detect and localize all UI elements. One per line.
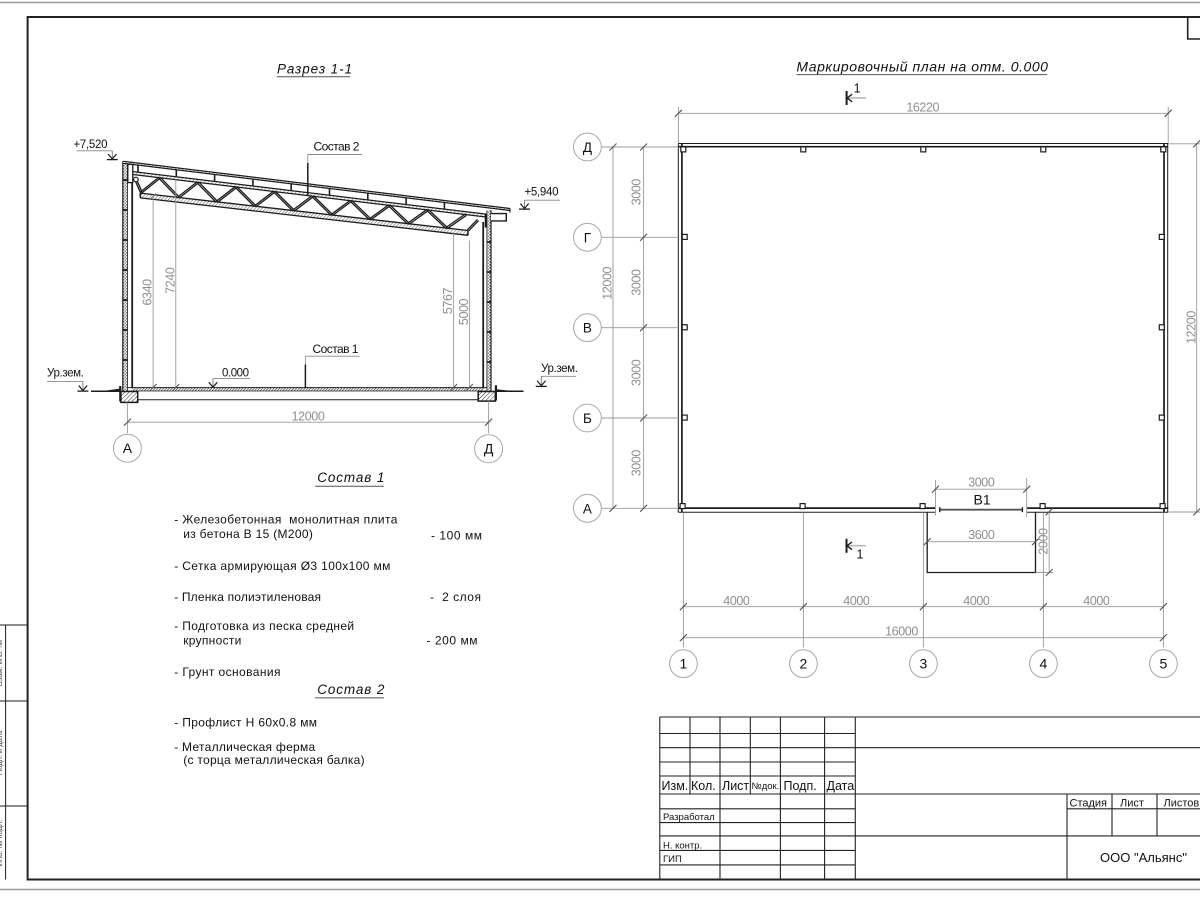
svg-text:6340: 6340 (141, 279, 155, 306)
svg-text:Состав 1: Состав 1 (313, 342, 359, 356)
svg-text:ГИП: ГИП (663, 854, 682, 865)
svg-text:- 2 слоя: - 2 слоя (430, 590, 481, 604)
svg-text:Разработал: Разработал (663, 812, 715, 823)
svg-text:Ур.зем.: Ур.зем. (47, 368, 84, 380)
svg-text:Взам. инв. №: Взам. инв. № (0, 640, 4, 686)
svg-text:из бетона В 15 (М200): из бетона В 15 (М200) (183, 527, 313, 541)
svg-text:Ур.зем.: Ур.зем. (541, 363, 578, 375)
svg-text:4000: 4000 (963, 594, 990, 608)
svg-text:4: 4 (1040, 656, 1048, 672)
svg-text:- 200 мм: - 200 мм (427, 634, 479, 648)
svg-text:Г: Г (584, 230, 592, 245)
svg-text:А: А (583, 501, 592, 516)
svg-text:2: 2 (800, 656, 808, 672)
svg-text:- Подготовка из песка средней: - Подготовка из песка средней (174, 619, 354, 633)
svg-text:Подп. и дата: Подп. и дата (0, 730, 4, 775)
svg-text:12000: 12000 (292, 409, 325, 423)
svg-text:Листов: Листов (1164, 798, 1200, 810)
svg-text:Подп.: Подп. (784, 779, 817, 793)
svg-text:Н. контр.: Н. контр. (663, 840, 702, 851)
svg-text:16220: 16220 (906, 101, 939, 115)
svg-text:5: 5 (1160, 656, 1168, 672)
svg-text:4000: 4000 (723, 594, 750, 608)
svg-text:Дата: Дата (827, 779, 855, 793)
svg-text:1: 1 (680, 656, 688, 672)
svg-text:Д: Д (583, 140, 592, 155)
svg-text:3000: 3000 (630, 269, 644, 296)
svg-text:3000: 3000 (630, 450, 644, 477)
svg-text:1: 1 (854, 82, 861, 96)
svg-text:5767: 5767 (441, 287, 455, 314)
svg-text:+7,520: +7,520 (74, 139, 108, 151)
svg-text:4000: 4000 (1083, 594, 1110, 608)
svg-text:Инв. № подл.: Инв. № подл. (0, 820, 4, 867)
svg-text:5000: 5000 (457, 298, 471, 325)
svg-text:ООО "Альянс": ООО "Альянс" (1100, 850, 1187, 865)
svg-text:4000: 4000 (843, 594, 870, 608)
svg-text:3000: 3000 (630, 179, 644, 206)
svg-text:Состав 2: Состав 2 (317, 682, 385, 697)
svg-text:крупности: крупности (183, 634, 242, 648)
svg-text:0.000: 0.000 (222, 368, 249, 380)
svg-text:- Пленка полиэтиленовая: - Пленка полиэтиленовая (174, 590, 321, 604)
svg-text:- Железобетонная монолитная п: - Железобетонная монолитная плита (174, 513, 398, 527)
svg-text:А: А (123, 440, 133, 456)
svg-text:Состав 1: Состав 1 (317, 470, 385, 485)
svg-text:Д: Д (484, 441, 494, 457)
svg-text:Состав 2: Состав 2 (314, 140, 360, 154)
svg-text:№док.: №док. (752, 781, 780, 792)
svg-text:В: В (583, 321, 592, 336)
svg-text:Б: Б (583, 411, 592, 426)
svg-text:12200: 12200 (1184, 311, 1198, 344)
svg-text:3: 3 (920, 656, 928, 672)
svg-text:- 100 мм: - 100 мм (431, 529, 483, 543)
svg-text:- Профлист Н 60х0.8 мм: - Профлист Н 60х0.8 мм (174, 716, 317, 730)
svg-text:- Грунт основания: - Грунт основания (174, 665, 281, 679)
svg-text:3600: 3600 (968, 528, 995, 542)
svg-text:Маркировочный план на отм. 0.0: Маркировочный план на отм. 0.000 (796, 59, 1048, 75)
svg-text:Лист: Лист (722, 779, 749, 793)
svg-text:Лист: Лист (1120, 798, 1144, 810)
svg-text:Разрез 1-1: Разрез 1-1 (277, 62, 353, 77)
svg-text:- Сетка армирующая Ø3 100х100: - Сетка армирующая Ø3 100х100 мм (174, 559, 391, 573)
svg-text:16000: 16000 (885, 624, 918, 638)
svg-text:3000: 3000 (968, 475, 995, 489)
svg-text:3000: 3000 (630, 359, 644, 386)
svg-text:Изм.: Изм. (662, 779, 689, 793)
svg-text:7240: 7240 (163, 267, 177, 294)
svg-text:+5,940: +5,940 (525, 186, 559, 198)
svg-text:Кол.: Кол. (691, 779, 716, 793)
svg-text:Стадия: Стадия (1070, 798, 1108, 810)
svg-text:(с торца металлическая балка): (с торца металлическая балка) (183, 753, 365, 767)
svg-text:- Металлическая ферма: - Металлическая ферма (174, 740, 315, 754)
svg-text:12000: 12000 (601, 266, 615, 299)
svg-text:В1: В1 (974, 492, 991, 508)
svg-text:1: 1 (857, 547, 864, 561)
